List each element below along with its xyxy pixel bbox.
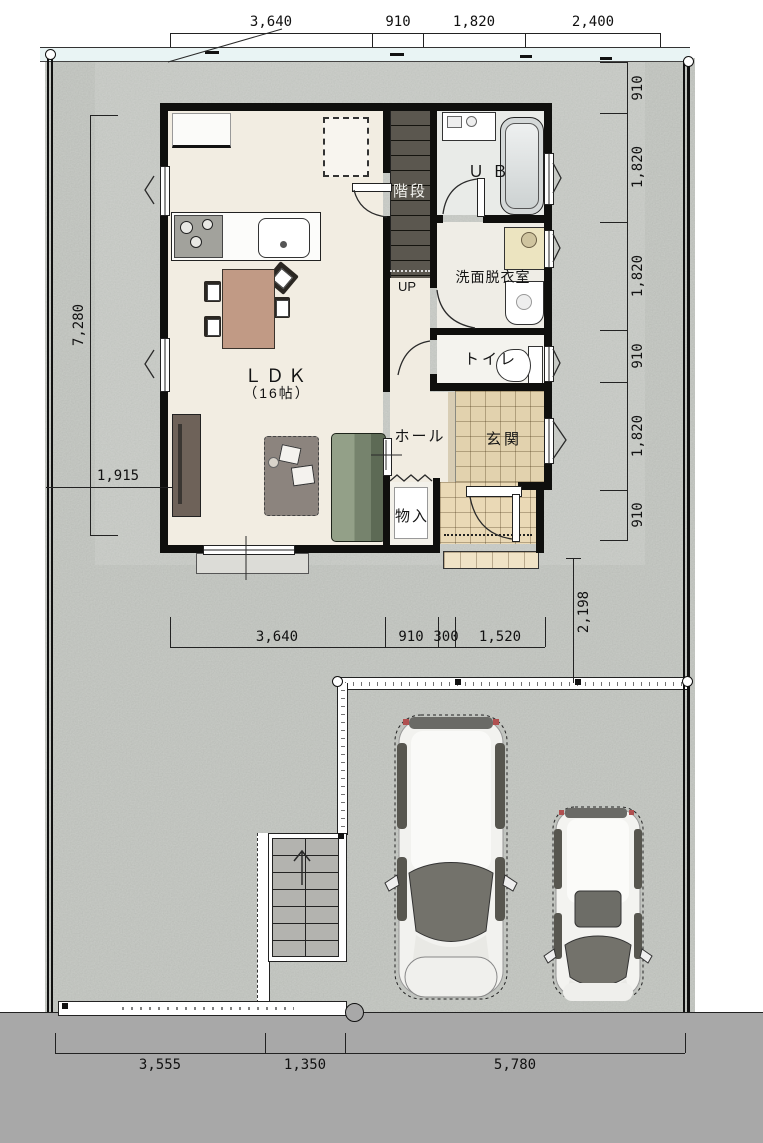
- door-arc-washroom: [437, 290, 475, 328]
- dim-tick: [90, 535, 118, 536]
- window-chevron: [553, 349, 560, 377]
- dim-bottom-1: 3,555: [120, 1057, 200, 1073]
- window-chevron: [553, 163, 561, 193]
- dim-right-6: 910: [630, 475, 646, 555]
- dim-tick: [600, 382, 628, 383]
- dim-tick: [685, 1033, 686, 1053]
- dim-tick: [600, 222, 628, 223]
- dim-inner-4: 1,520: [460, 629, 540, 645]
- dim-top-4: 2,400: [553, 14, 633, 30]
- dim-tick: [170, 33, 171, 47]
- dim-right-5: 1,820: [630, 396, 646, 476]
- dim-right-2: 1,820: [630, 127, 646, 207]
- dim-top-2: 910: [373, 14, 423, 30]
- entry-door-chevron: [553, 421, 566, 459]
- dim-top-3: 1,820: [434, 14, 514, 30]
- dim-line-offset: [46, 487, 172, 488]
- boundary-pin: [683, 56, 694, 67]
- dim-tick: [170, 617, 171, 647]
- dim-line-bottom: [55, 1053, 685, 1054]
- fence-post: [62, 1003, 68, 1009]
- dim-right-4: 910: [630, 316, 646, 396]
- dim-tick: [660, 33, 661, 47]
- dim-tick: [600, 490, 628, 491]
- dim-approach: 2,198: [576, 572, 592, 652]
- door-arc-stairs: [354, 190, 387, 217]
- dim-tick: [600, 62, 628, 63]
- dim-top-1: 3,640: [231, 14, 311, 30]
- dim-line-right: [627, 62, 628, 540]
- window-chevron: [553, 234, 560, 262]
- accordion-door-storage: [390, 475, 432, 481]
- dim-left-offset: 1,915: [88, 468, 148, 484]
- dim-tick: [600, 330, 628, 331]
- dim-tick: [545, 617, 546, 647]
- door-arc-bath: [443, 179, 477, 214]
- utility-manhole: [345, 1003, 364, 1022]
- fence-pin: [682, 676, 693, 687]
- boundary-pin: [45, 49, 56, 60]
- dim-tick: [600, 540, 628, 541]
- floor-plan-canvas: ＬＤＫ （16帖） 階段 UP ＵＢ 洗面脱衣室 トイレ ホール 玄関 物入 3…: [0, 0, 763, 1143]
- dim-tick: [423, 33, 424, 47]
- dim-bottom-3: 5,780: [475, 1057, 555, 1073]
- annotation-overlay: [0, 0, 763, 1143]
- dim-bottom-2: 1,350: [265, 1057, 345, 1073]
- dim-tick: [345, 1033, 346, 1053]
- window-chevron: [145, 176, 154, 204]
- dim-tick: [55, 1033, 56, 1053]
- stairs-up-arrow: [294, 851, 310, 885]
- dim-line-inner: [170, 647, 545, 648]
- fence-post: [338, 833, 344, 839]
- door-arc-front: [470, 497, 512, 539]
- hall-door-cross: [371, 440, 402, 470]
- dim-tick: [372, 33, 373, 47]
- dim-tick: [525, 33, 526, 47]
- fence-post: [455, 679, 461, 685]
- dim-tick: [90, 115, 118, 116]
- dim-line-approach: [573, 558, 574, 683]
- dim-tick: [265, 1033, 266, 1053]
- door-arc-toilet: [398, 341, 430, 375]
- fence-pin: [332, 676, 343, 687]
- dim-inner-1: 3,640: [237, 629, 317, 645]
- dim-line-top: [170, 33, 660, 34]
- dim-tick: [566, 558, 581, 559]
- dim-left-total: 7,280: [71, 285, 87, 365]
- window-chevron: [145, 350, 154, 378]
- dim-right-1: 910: [630, 48, 646, 128]
- dim-right-3: 1,820: [630, 236, 646, 316]
- dim-tick: [600, 113, 628, 114]
- fence-post: [575, 679, 581, 685]
